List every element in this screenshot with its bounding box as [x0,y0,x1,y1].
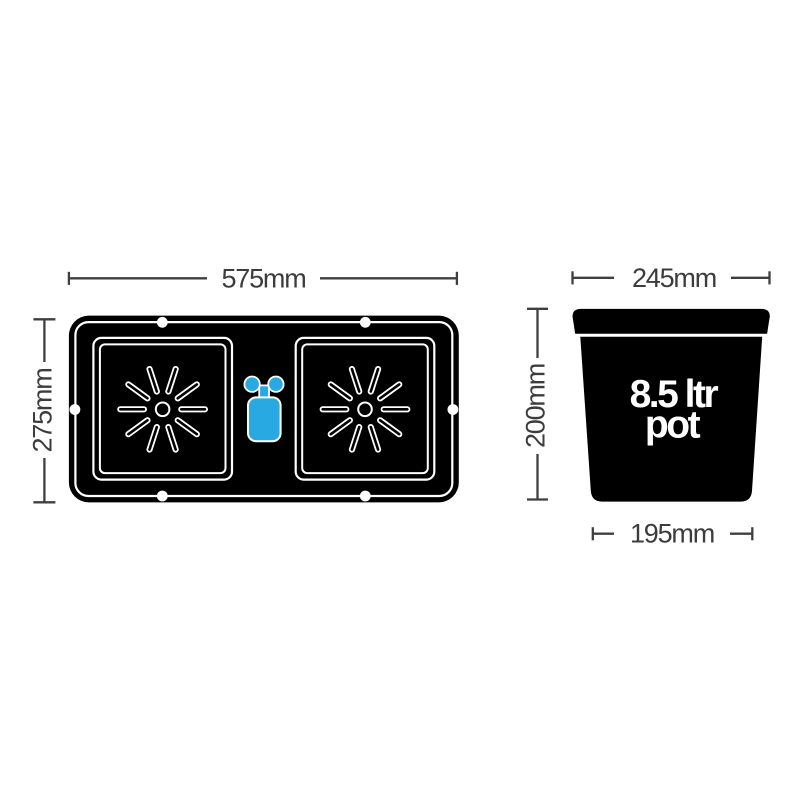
svg-text:pot: pot [645,404,701,447]
svg-text:195mm: 195mm [630,519,714,549]
svg-text:275mm: 275mm [28,368,58,452]
svg-text:245mm: 245mm [632,263,716,293]
svg-text:200mm: 200mm [521,364,551,448]
svg-text:575mm: 575mm [221,264,305,294]
